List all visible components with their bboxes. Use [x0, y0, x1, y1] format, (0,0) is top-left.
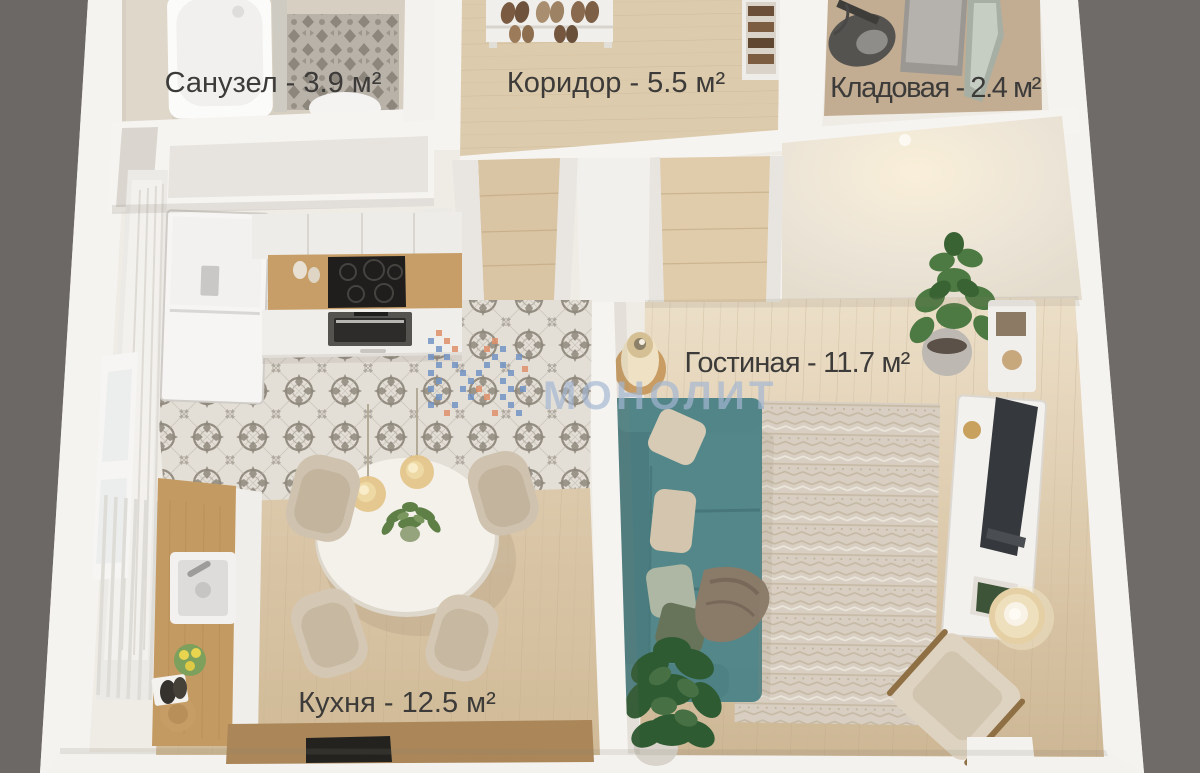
svg-text:МОНОЛИТ: МОНОЛИТ — [543, 374, 778, 418]
svg-text:Коридор - 5.5 м²: Коридор - 5.5 м² — [507, 67, 726, 99]
svg-text:Кухня - 12.5 м²: Кухня - 12.5 м² — [298, 687, 496, 719]
svg-text:Санузел - 3.9 м²: Санузел - 3.9 м² — [165, 67, 382, 99]
svg-text:Кладовая - 2.4 м²: Кладовая - 2.4 м² — [830, 72, 1042, 104]
